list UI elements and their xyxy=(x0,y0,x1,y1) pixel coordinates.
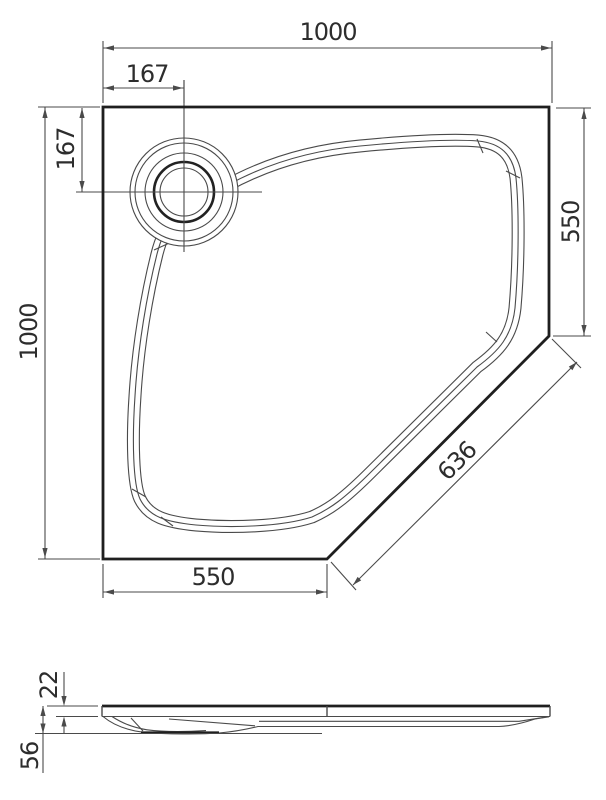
dim-label-profile-rim-height: 22 xyxy=(35,671,63,700)
plan-view xyxy=(76,80,549,559)
drawing-canvas: 1000 167 167 1000 550 636 xyxy=(0,0,606,800)
profile-floor-slope-line xyxy=(169,719,255,726)
arrowhead-left xyxy=(104,589,114,594)
arrowhead-bottom xyxy=(42,548,47,558)
arrowhead-top xyxy=(581,109,586,119)
dimension-line xyxy=(353,362,577,585)
profile-underside-step-line xyxy=(259,717,545,721)
dimension-width-top: 1000 xyxy=(103,18,552,103)
dimension-drain-offset-vertical: 167 xyxy=(52,108,85,192)
arrowhead-up xyxy=(40,706,45,716)
arrowhead-left xyxy=(104,85,114,90)
arrowhead-up xyxy=(61,717,66,727)
arrowhead-right xyxy=(173,85,183,90)
dim-label-bottom-segment: 550 xyxy=(192,563,235,591)
arrowhead-top xyxy=(42,108,47,118)
technical-drawing: 1000 167 167 1000 550 636 xyxy=(0,0,606,800)
arrowhead-right xyxy=(541,45,551,50)
extension-line xyxy=(331,562,356,590)
dimension-height-left: 1000 xyxy=(15,107,100,559)
dim-label-diagonal-cut: 636 xyxy=(432,436,482,486)
arrowhead-left xyxy=(104,45,114,50)
dim-label-side-right: 550 xyxy=(557,201,585,244)
dim-label-height-left: 1000 xyxy=(15,303,43,360)
dim-label-width-top: 1000 xyxy=(299,18,356,46)
dim-label-drain-offset-horizontal: 167 xyxy=(126,60,169,88)
arrowhead-right xyxy=(316,589,326,594)
rim-joint-tick xyxy=(486,332,497,342)
dimension-bottom-segment: 550 xyxy=(103,563,327,598)
arrowhead-down xyxy=(40,724,45,734)
arrowhead-bottom xyxy=(79,181,84,191)
side-view xyxy=(102,706,550,734)
dim-label-profile-total-height: 56 xyxy=(16,742,44,771)
extension-line xyxy=(552,339,581,368)
dim-label-drain-offset-vertical: 167 xyxy=(52,128,80,171)
arrowhead-top xyxy=(79,108,84,118)
arrowhead-bottom xyxy=(581,325,586,335)
profile-joint-tick xyxy=(131,718,143,731)
dimension-diagonal-cut: 636 xyxy=(331,339,581,590)
dimension-drain-offset-horizontal: 167 xyxy=(103,60,184,103)
dimension-side-right: 550 xyxy=(553,108,591,336)
